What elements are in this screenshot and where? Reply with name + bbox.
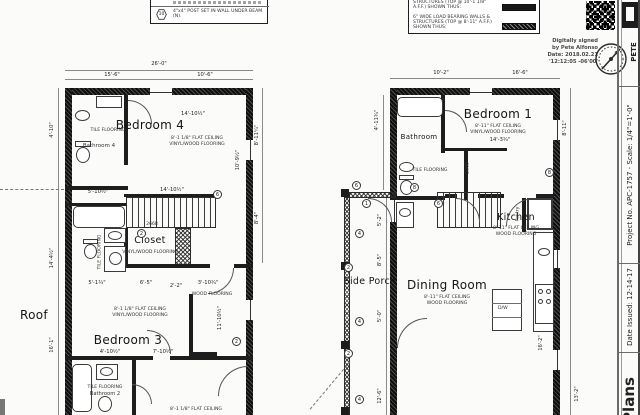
- dim-label: 7'-10½": [153, 349, 174, 355]
- chase-wall: [175, 228, 191, 268]
- notes-box: 10 4"x4" POST SET IN WALL UNDER BEAM (N)…: [150, 0, 268, 24]
- window: [246, 140, 253, 160]
- dim-label: 15'-6": [104, 72, 120, 78]
- toilet: [84, 244, 97, 259]
- keynote-callout: 2: [344, 263, 353, 272]
- roof-dashed-line: [0, 189, 64, 190]
- stairs: [126, 197, 216, 228]
- signature-line: Digitally signed: [534, 38, 598, 45]
- porch-post: [341, 341, 349, 349]
- signature-line: '12:12:05 -06'00': [534, 59, 598, 66]
- sink: [108, 231, 122, 240]
- porch-screen-wall: [344, 192, 350, 415]
- dim-label: 10'-2": [433, 70, 449, 76]
- floor-note: TILE FLOORING: [88, 385, 123, 390]
- dim-label: 16'-6": [512, 70, 528, 76]
- signature-stamp-qr: [586, 1, 615, 30]
- kitchen-sink: [538, 248, 550, 256]
- signature-line: by Pete Alfonso: [534, 45, 598, 52]
- dim-line: [262, 88, 263, 263]
- door-arc: [218, 366, 248, 396]
- room-label-bedroom4: Bedroom 4: [116, 118, 184, 132]
- dim-label: 4'-10": [49, 122, 55, 138]
- roof-label: Roof: [20, 308, 48, 322]
- washer-door: [109, 252, 122, 265]
- wall: [234, 264, 253, 268]
- dim-line: [58, 88, 59, 415]
- window: [553, 250, 560, 268]
- burner: [538, 299, 543, 304]
- burner: [546, 289, 551, 294]
- floor-note: VINYL/WOOD FLOORING: [122, 250, 177, 255]
- floor-note: VINYL/WOOD FLOORING: [470, 130, 525, 135]
- keynote-callout: 8: [410, 183, 419, 192]
- dim-label: 11'-10½": [217, 306, 223, 330]
- divider: [151, 6, 269, 7]
- door-arc: [132, 384, 152, 404]
- window: [553, 120, 560, 140]
- floor-note: WOOD FLOORING: [496, 232, 537, 237]
- edge-mark: [0, 399, 5, 415]
- dim-label: 4'-10½": [100, 349, 121, 355]
- room-label-bathroom: Bathroom: [401, 133, 438, 141]
- room-label-bathroom2: Bathroom 2: [90, 391, 120, 397]
- dim-line: [65, 79, 253, 80]
- ceiling-note: 8'-1 1/8" FLAT CEILING: [170, 407, 222, 412]
- note-text-illegible: [173, 1, 261, 4]
- wall-legend-box: STRUCTURES (TOP @ 10'-1 1/8" A.F.F.) SHO…: [408, 0, 540, 34]
- dim-label: 6'-5": [140, 280, 152, 286]
- porch-post: [341, 407, 349, 415]
- dim-label: 14'-10½": [160, 187, 184, 193]
- dim-label: 5'-10½": [88, 189, 109, 195]
- dim-label: 8'-11¼": [254, 125, 260, 146]
- dishwasher-label: D/W: [498, 306, 508, 311]
- floor-note: WOOD FLOORING: [427, 301, 468, 306]
- date-issued: Date Issued: 12-14-17: [626, 268, 634, 346]
- room-label-dining: Dining Room: [407, 278, 487, 292]
- signature-line: Date: 2018.02.21: [534, 52, 598, 59]
- floor-note: TILE FLOORING: [91, 128, 126, 133]
- wall: [65, 88, 72, 415]
- ceiling-note: 8'-1 1/8" FLAT CEILING: [114, 307, 166, 312]
- dim-label: 14'-3¾": [490, 137, 511, 143]
- door-arc: [397, 318, 427, 348]
- ceiling-note: 8'-11" FLAT CEILING: [475, 124, 521, 129]
- dim-line: [390, 78, 560, 79]
- porch-post: [341, 189, 349, 197]
- ceiling-note: 8'-1 1/8" FLAT CEILING: [171, 136, 223, 141]
- floor-note: WOOD FLOORING: [192, 292, 233, 297]
- titleblock-tick: [617, 352, 640, 353]
- dim-label: 14'-4½": [49, 248, 55, 269]
- dim-label: 5'-0": [377, 310, 383, 322]
- wall: [445, 148, 507, 151]
- firm-logo-mark-inner: [626, 7, 634, 21]
- dim-label: 4'-11¾": [374, 110, 380, 131]
- keynote-callout: 2: [344, 349, 353, 358]
- window: [553, 350, 560, 370]
- wall: [124, 264, 196, 268]
- keynote-callout: 2: [137, 229, 146, 238]
- titleblock-tick: [617, 263, 640, 264]
- burner: [538, 289, 543, 294]
- dim-label: 3'-10¾": [198, 280, 219, 286]
- toilet: [98, 396, 112, 412]
- dim-label: 16'-2": [538, 335, 544, 351]
- dim-label: 8'-5": [377, 254, 383, 266]
- north-arrow-compass: [592, 40, 630, 78]
- ceiling-note: 8'-11" FLAT CEILING: [493, 226, 539, 231]
- burner: [546, 299, 551, 304]
- keynote-callout: 1: [362, 199, 371, 208]
- firm-name: PETE: [630, 42, 638, 61]
- room-label-bathroom4: Bathroom 4: [83, 143, 115, 149]
- keynote-hexagon-symbol: 10: [156, 9, 167, 20]
- dim-label: 13'-2": [574, 386, 580, 402]
- floor-plan-sheet: 10 4"x4" POST SET IN WALL UNDER BEAM (N)…: [0, 0, 640, 415]
- wall: [390, 88, 397, 415]
- sink: [100, 367, 113, 376]
- island-divider: [492, 317, 522, 318]
- wall: [189, 294, 193, 356]
- dim-line: [570, 88, 571, 415]
- sink: [75, 110, 90, 121]
- sheet-name: Plans: [620, 377, 638, 415]
- project-number-scale: Project No. APC-1757 - Scale: 1/4"=1'-0": [626, 104, 634, 246]
- dim-label: 8'-4": [254, 212, 260, 224]
- digital-signature-text: Digitally signed by Pete Alfonso Date: 2…: [534, 38, 598, 66]
- door-size-tag: 2668: [146, 222, 158, 227]
- legend-swatch-bearing-walls: [502, 23, 536, 30]
- ceiling-note: 8'-11" FLAT CEILING: [424, 295, 470, 300]
- dim-label: 2'-2": [170, 283, 182, 289]
- island-divider: [492, 303, 522, 304]
- dim-label: 12'-6": [377, 388, 383, 404]
- legend-row1-label: STRUCTURES (TOP @ 10'-1 1/8" A.F.F.) SHO…: [413, 0, 499, 10]
- dim-label: 10'-9½": [235, 150, 241, 171]
- window: [150, 88, 172, 95]
- room-label-bedroom1: Bedroom 1: [464, 107, 532, 121]
- dim-line: [383, 95, 384, 190]
- closet-shelf: [96, 96, 122, 108]
- keynote-callout: 6: [352, 181, 361, 190]
- keynote-callout: 4: [355, 317, 364, 326]
- keynote-callout: 6: [213, 190, 222, 199]
- dim-line: [65, 70, 253, 71]
- dim-label: 14'-10½": [181, 111, 205, 117]
- keynote-callout: 4: [355, 395, 364, 404]
- wall: [170, 356, 253, 360]
- room-label-bedroom3: Bedroom 3: [94, 333, 162, 347]
- floor-note: TILE FLOORING: [413, 168, 448, 173]
- keynote-callout: 4: [355, 229, 364, 238]
- dim-line: [386, 198, 387, 415]
- post-note: 4"x4" POST SET IN WALL UNDER BEAM (N).: [173, 9, 265, 19]
- legend-swatch-structures: [502, 4, 536, 11]
- keynote-number: 10: [157, 10, 166, 19]
- dim-label: 8'-11": [562, 120, 568, 136]
- floor-note: TILE FLOORING: [98, 235, 103, 270]
- dim-label: 5'-1¾": [88, 280, 105, 286]
- room-label-side-porch: Side Porch: [344, 276, 397, 287]
- dim-label: 26'-0": [151, 61, 167, 67]
- dim-label: 16'-1": [49, 337, 55, 353]
- keynote-callout: 8: [545, 168, 554, 177]
- legend-row2-label: 6" WIDE LOAD BEARING WALLS & STRUCTURES …: [413, 15, 499, 30]
- room-label-pantry: Pantry: [516, 207, 521, 222]
- floor-note: VINYL/WOOD FLOORING: [112, 313, 167, 318]
- bathtub: [397, 97, 443, 117]
- bathtub: [73, 206, 125, 228]
- window: [246, 300, 253, 320]
- floor-note: VINYL/WOOD FLOORING: [169, 142, 224, 147]
- door-size-tag: 2668: [466, 162, 471, 174]
- titleblock-tick: [617, 86, 640, 87]
- toilet: [76, 147, 90, 163]
- keynote-callout: 2: [232, 337, 241, 346]
- sink: [399, 208, 411, 217]
- keynote-callout: 6: [434, 199, 443, 208]
- wall: [65, 356, 153, 360]
- door-arc: [368, 198, 392, 222]
- dim-label: 10'-6": [197, 72, 213, 78]
- window: [470, 88, 492, 95]
